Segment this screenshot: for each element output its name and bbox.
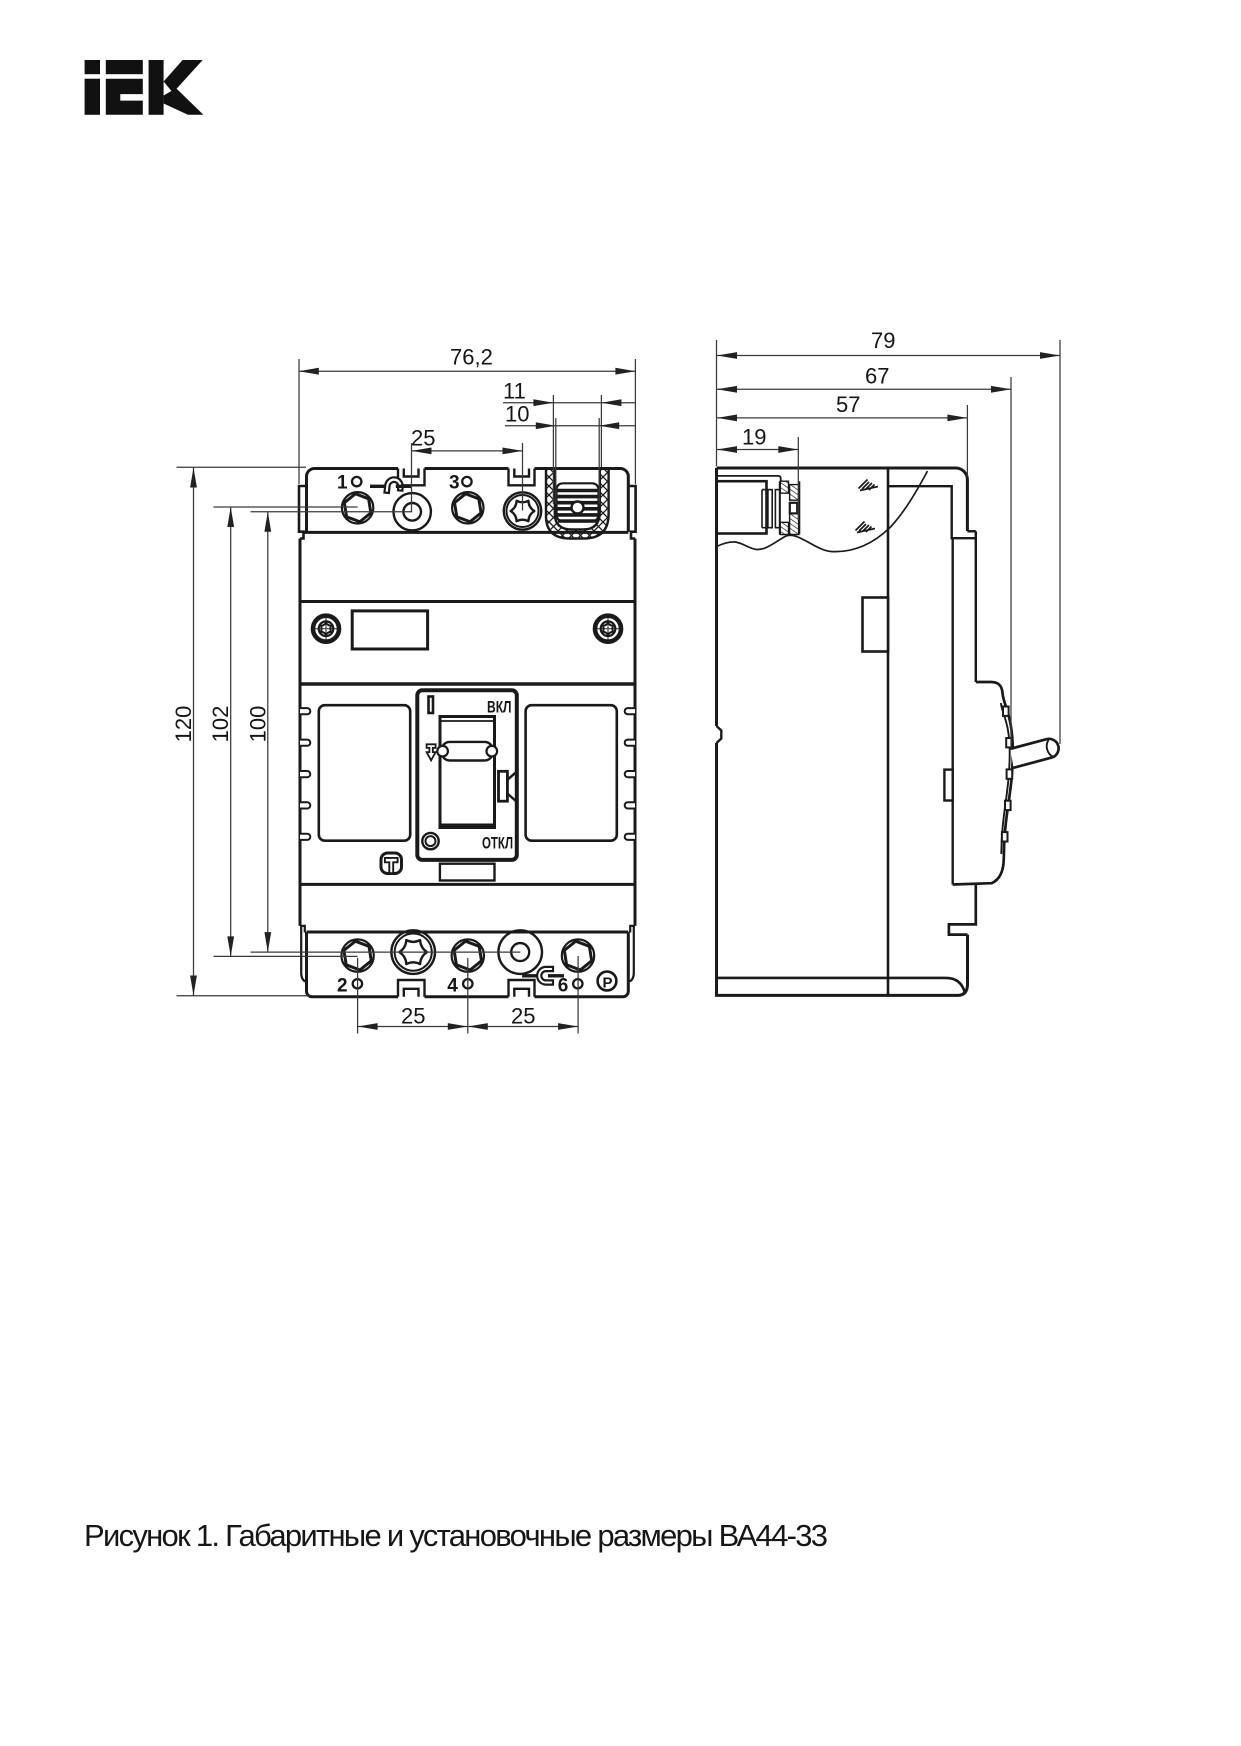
svg-text:Рисунок 1. Габаритные и устано: Рисунок 1. Габаритные и установочные раз…	[84, 1518, 828, 1553]
svg-text:120: 120	[171, 706, 196, 743]
svg-text:3: 3	[449, 473, 460, 494]
svg-text:11: 11	[503, 379, 526, 404]
svg-text:25: 25	[511, 1004, 535, 1029]
svg-text:P: P	[603, 975, 613, 992]
svg-text:2: 2	[337, 976, 348, 997]
svg-text:102: 102	[208, 706, 233, 743]
svg-text:1: 1	[337, 473, 348, 494]
svg-text:6: 6	[558, 976, 569, 997]
svg-text:ВКЛ: ВКЛ	[487, 698, 512, 717]
svg-text:10: 10	[505, 402, 529, 427]
svg-text:19: 19	[742, 425, 766, 450]
svg-text:76,2: 76,2	[450, 345, 493, 370]
svg-text:ОТКЛ: ОТКЛ	[482, 834, 513, 853]
svg-text:79: 79	[871, 328, 895, 353]
svg-text:25: 25	[401, 1004, 425, 1029]
svg-text:57: 57	[836, 392, 860, 417]
svg-text:4: 4	[447, 976, 458, 997]
svg-text:67: 67	[865, 364, 889, 389]
svg-text:100: 100	[245, 706, 270, 743]
svg-text:25: 25	[411, 426, 435, 451]
